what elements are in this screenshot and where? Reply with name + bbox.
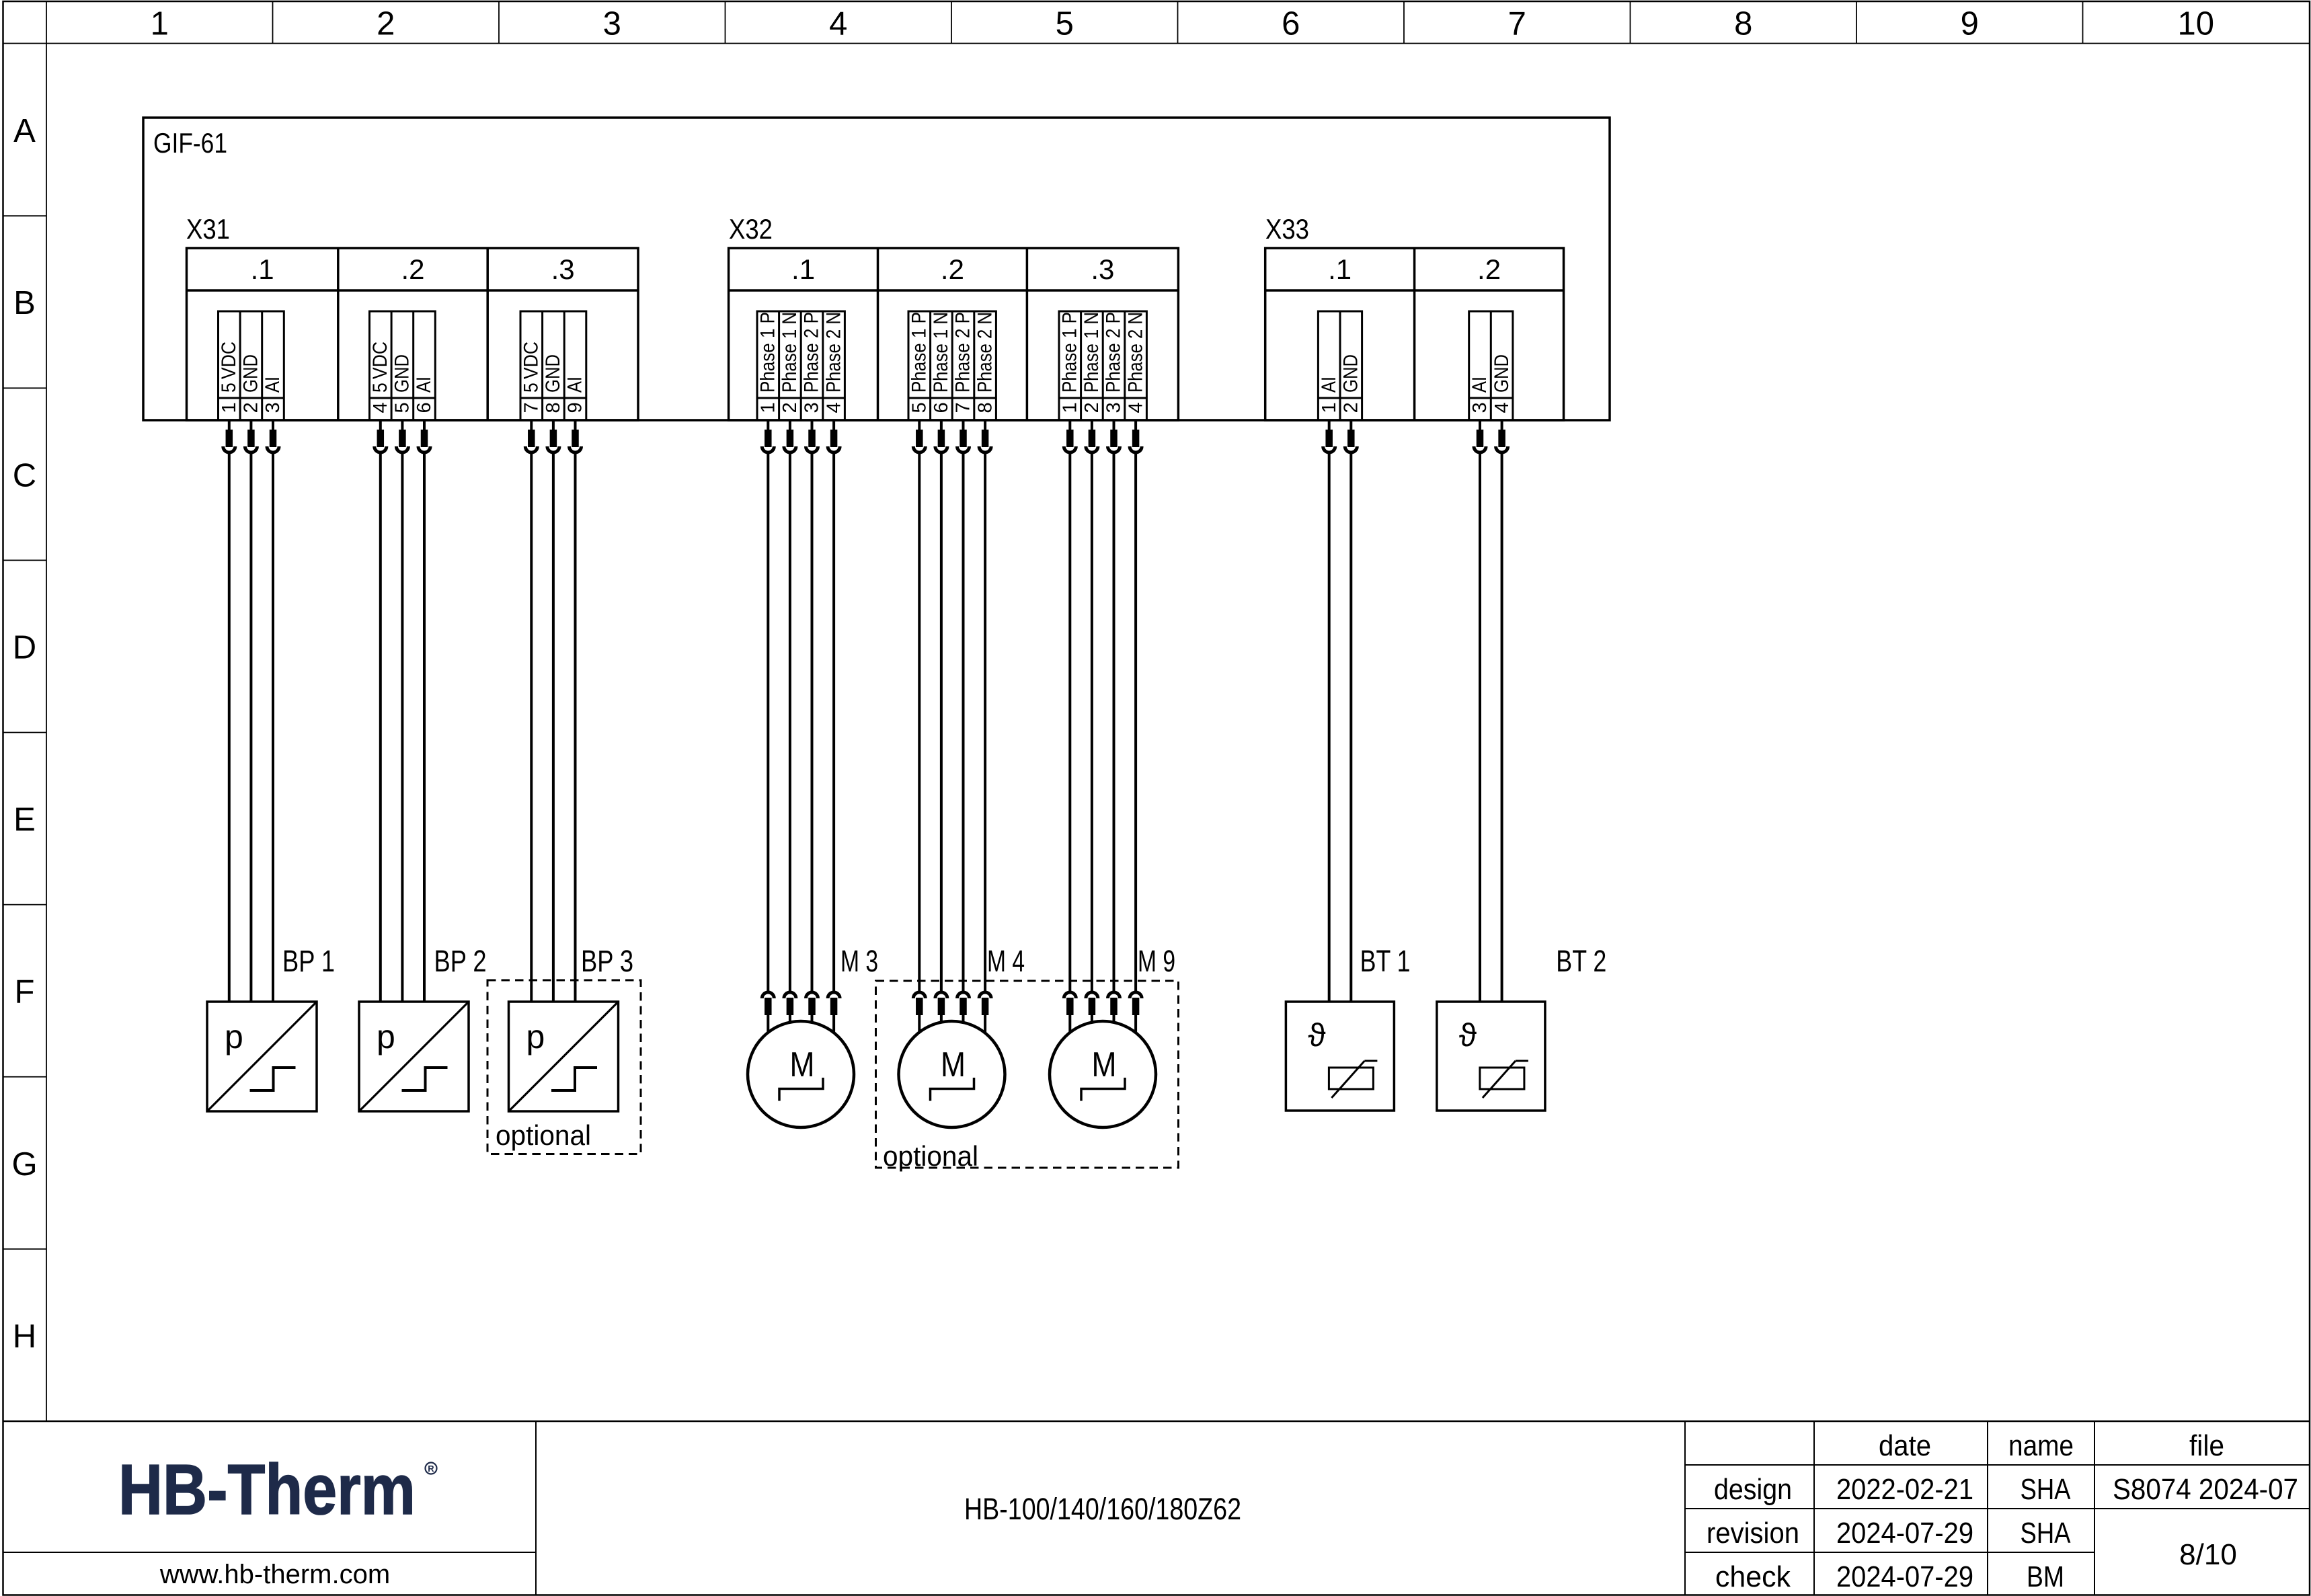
svg-text:M: M [790,1045,815,1084]
svg-text:2: 2 [1081,402,1103,413]
svg-text:4: 4 [829,6,847,42]
svg-text:Phase 2 N: Phase 2 N [974,312,996,393]
svg-text:GND: GND [542,354,564,393]
svg-text:8: 8 [974,402,996,413]
svg-text:Phase 1 P: Phase 1 P [757,312,779,393]
svg-text:S8074 2024-07: S8074 2024-07 [2113,1473,2298,1506]
svg-text:BT 1: BT 1 [1360,944,1411,978]
svg-text:optional: optional [883,1140,978,1172]
svg-text:2022-02-21: 2022-02-21 [1836,1473,1973,1506]
svg-text:AI: AI [1318,376,1340,393]
svg-text:1: 1 [1319,402,1340,413]
svg-text:.3: .3 [1091,253,1114,285]
svg-text:.1: .1 [1328,253,1352,285]
svg-text:.2: .2 [401,253,424,285]
svg-text:2: 2 [241,402,262,413]
svg-text:M 4: M 4 [987,944,1025,978]
svg-text:ϑ: ϑ [1459,1018,1477,1053]
svg-text:1: 1 [758,402,779,413]
svg-text:8: 8 [1734,6,1752,42]
svg-text:check: check [1715,1560,1791,1593]
svg-text:3: 3 [801,402,823,413]
svg-text:Phase 1 N: Phase 1 N [779,312,801,393]
svg-text:6: 6 [1282,6,1300,42]
svg-text:4: 4 [823,402,845,413]
svg-text:design: design [1714,1473,1792,1506]
svg-text:9: 9 [565,402,586,413]
svg-text:name: name [2008,1429,2074,1462]
svg-text:www.hb-therm.com: www.hb-therm.com [159,1560,390,1589]
svg-text:4: 4 [1125,402,1146,413]
svg-text:Phase 1 P: Phase 1 P [908,312,931,393]
svg-text:Phase 2 N: Phase 2 N [822,312,845,393]
svg-text:X32: X32 [729,213,773,245]
svg-text:5 VDC: 5 VDC [520,342,543,393]
svg-text:3: 3 [1103,402,1125,413]
svg-text:M: M [1092,1045,1117,1084]
svg-text:.1: .1 [251,253,274,285]
svg-text:.3: .3 [551,253,575,285]
svg-text:10: 10 [2177,6,2214,42]
svg-text:4: 4 [370,402,391,413]
svg-text:file: file [2189,1429,2224,1462]
svg-text:4: 4 [1491,402,1513,413]
svg-text:2: 2 [377,6,395,42]
svg-text:.1: .1 [791,253,815,285]
svg-text:GND: GND [240,354,262,393]
svg-text:GIF-61: GIF-61 [153,127,227,159]
svg-text:date: date [1879,1429,1931,1462]
svg-text:optional: optional [496,1119,591,1151]
svg-text:SHA: SHA [2021,1473,2072,1506]
svg-text:GND: GND [1491,354,1513,393]
svg-text:3: 3 [603,6,621,42]
svg-text:9: 9 [1961,6,1979,42]
svg-text:Phase 2 P: Phase 2 P [1103,312,1125,393]
svg-text:BM: BM [2027,1560,2064,1593]
svg-text:2024-07-29: 2024-07-29 [1836,1560,1973,1593]
svg-text:8: 8 [543,402,564,413]
svg-text:5 VDC: 5 VDC [218,342,240,393]
svg-text:1: 1 [219,402,240,413]
svg-text:5: 5 [909,402,931,413]
svg-text:GND: GND [1340,354,1362,393]
svg-text:6: 6 [931,402,952,413]
svg-text:HB-100/140/160/180Z62: HB-100/140/160/180Z62 [964,1492,1241,1526]
svg-text:5: 5 [1056,6,1074,42]
svg-text:p: p [225,1018,243,1055]
svg-text:2024-07-29: 2024-07-29 [1836,1517,1973,1550]
svg-text:Phase 1 N: Phase 1 N [1081,312,1103,393]
svg-text:AI: AI [564,376,586,393]
svg-text:BP 2: BP 2 [434,944,487,978]
svg-text:G: G [11,1146,37,1183]
svg-text:1: 1 [1060,402,1081,413]
svg-text:B: B [13,285,36,321]
svg-text:.2: .2 [1477,253,1501,285]
svg-text:2: 2 [1341,402,1362,413]
svg-text:revision: revision [1707,1517,1799,1550]
svg-text:HB-Therm: HB-Therm [118,1450,416,1529]
svg-text:F: F [15,974,35,1010]
svg-text:p: p [377,1018,395,1055]
svg-text:3: 3 [1469,402,1491,413]
svg-text:ϑ: ϑ [1308,1018,1325,1053]
svg-text:5: 5 [392,402,414,413]
svg-text:R: R [428,1464,434,1474]
svg-text:3: 3 [262,402,284,413]
svg-text:5 VDC: 5 VDC [369,342,391,393]
svg-text:D: D [13,629,36,666]
svg-text:H: H [13,1318,36,1355]
svg-text:1: 1 [151,6,169,42]
svg-text:6: 6 [414,402,435,413]
svg-text:2: 2 [779,402,801,413]
svg-text:M 3: M 3 [840,944,878,978]
svg-text:Phase 2 P: Phase 2 P [801,312,823,393]
svg-text:7: 7 [1508,6,1526,42]
svg-text:GND: GND [391,354,414,393]
svg-text:M 9: M 9 [1138,944,1175,978]
svg-text:AI: AI [413,376,435,393]
svg-text:7: 7 [953,402,974,413]
svg-text:8/10: 8/10 [2179,1538,2237,1571]
svg-text:AI: AI [262,376,284,393]
svg-text:Phase 1 P: Phase 1 P [1059,312,1081,393]
svg-text:C: C [13,457,36,493]
svg-text:BP 1: BP 1 [282,944,335,978]
svg-text:X31: X31 [186,213,230,245]
svg-text:SHA: SHA [2021,1517,2072,1550]
svg-text:BP 3: BP 3 [581,944,633,978]
svg-text:Phase 1 N: Phase 1 N [930,312,952,393]
svg-text:Phase 2 N: Phase 2 N [1124,312,1146,393]
svg-text:A: A [13,113,36,149]
svg-text:AI: AI [1468,376,1491,393]
svg-text:p: p [526,1018,545,1055]
svg-text:.2: .2 [941,253,964,285]
svg-text:7: 7 [521,402,543,413]
svg-text:BT 2: BT 2 [1556,944,1606,978]
svg-text:M: M [941,1045,966,1084]
svg-text:X33: X33 [1265,213,1309,245]
svg-text:E: E [13,802,36,838]
svg-text:Phase 2 P: Phase 2 P [952,312,974,393]
